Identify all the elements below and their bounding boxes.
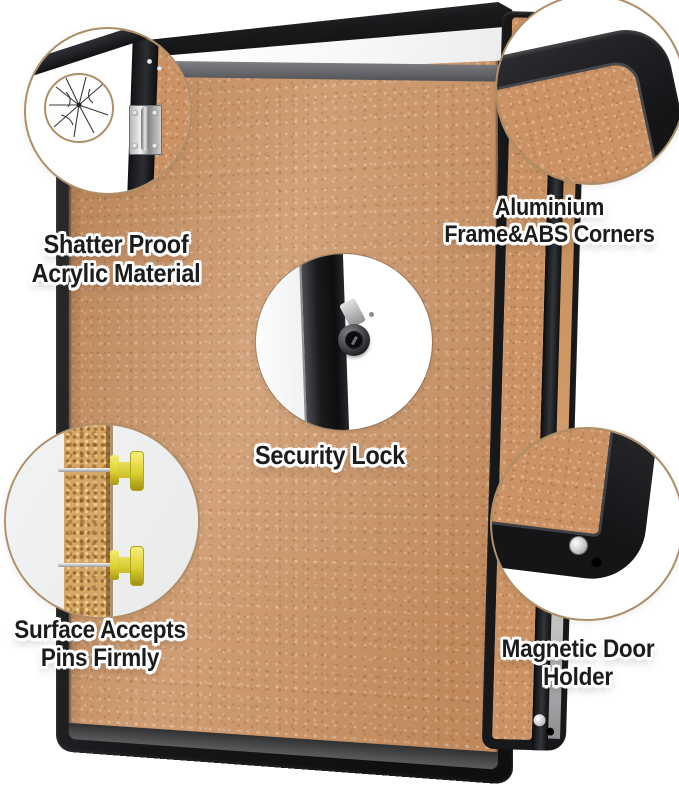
zoom-pin-dot [369,312,374,317]
cracked-glass-icon [44,73,114,143]
label-surface-pins: Surface Accepts Pins Firmly [3,616,197,673]
pin-needle [58,468,114,472]
label-aluminium-frame: Aluminium Frame&ABS Corners [433,194,666,248]
abs-corner [495,21,679,185]
label-shatter-proof: Shatter Proof Acrylic Material [12,230,221,289]
corner-cork [495,58,678,185]
corner-cork [490,427,621,538]
product-image: Shatter Proof Acrylic Material Aluminium… [0,0,679,791]
label-security-lock: Security Lock [238,441,422,470]
hinge-screw-icon [152,110,158,116]
callout-corner-circle [495,0,679,185]
callout-shatterproof-circle [24,27,192,195]
hinge [129,105,162,155]
frame-corner [490,427,663,585]
pin-needle [58,563,114,567]
screw-icon [157,66,162,71]
hinge-screw-icon [132,110,138,116]
screw-icon [147,59,152,64]
hinge-pin [141,107,149,151]
hinge-screw-icon [152,143,158,149]
cork-cross-section-edge [106,423,113,619]
pin-cap [130,546,144,586]
lock-cylinder-icon [338,324,370,356]
mounting-hole-icon [591,557,602,568]
key-slot [351,336,357,345]
label-magnetic-holder: Magnetic Door Holder [479,635,677,692]
hinge-screw-icon [132,143,138,149]
callout-magnet-circle [490,427,679,621]
magnet-dot-icon [570,537,587,554]
cork-cross-section [64,423,110,619]
pin-cap [130,451,144,491]
keyhole-icon [345,331,363,349]
callout-pins-circle [4,423,200,619]
callout-lock-circle [256,254,432,430]
